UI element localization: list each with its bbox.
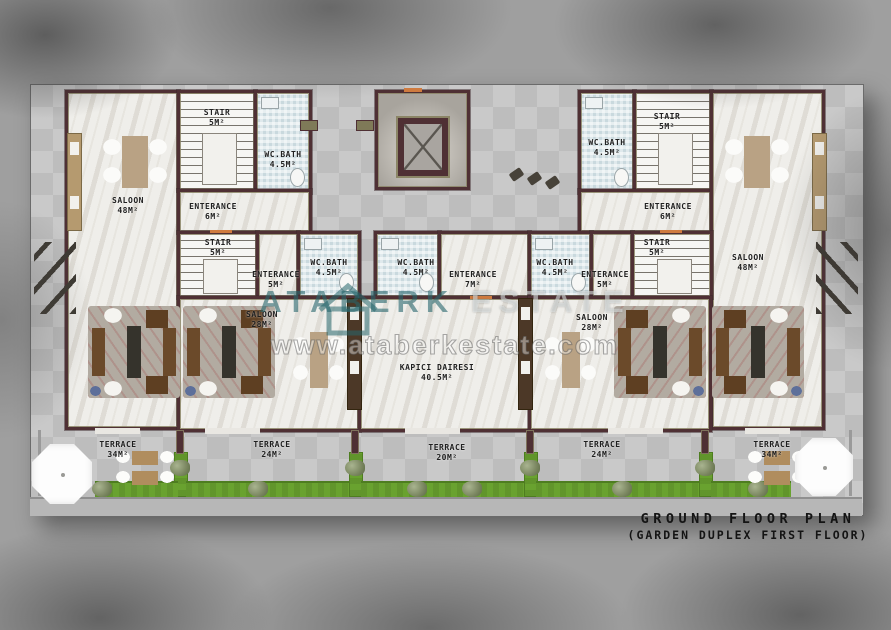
plan-title: GROUND FLOOR PLAN (GARDEN DUPLEX FIRST F… [606, 511, 890, 543]
room-label-saloon-tl: SALOON48M² [98, 196, 158, 215]
terrace-door-opening [405, 428, 460, 434]
bush-icon [520, 460, 540, 476]
dining-set [722, 131, 792, 193]
terrace-divider-wall [526, 430, 534, 454]
room-label-ent-tl: ENTERANCE6M² [183, 202, 243, 221]
kitchen-counter [812, 133, 827, 231]
terrace-door-opening [608, 428, 663, 434]
dining-set [293, 328, 345, 392]
sofa-set [614, 306, 706, 398]
terrace-divider-wall [701, 430, 709, 454]
room-label-wc-tl: WC.BATH4.5M² [253, 150, 313, 169]
door-marker [404, 88, 422, 92]
bush-icon [407, 481, 427, 497]
room-stair-top-right [633, 90, 713, 192]
room-wcbath-top-left [254, 90, 312, 194]
wall-stub [300, 120, 318, 131]
bush-icon [462, 481, 482, 497]
room-label-ent-c: ENTERANCE7M² [443, 270, 503, 289]
room-label-ent-mr: ENTERANCE5M² [575, 270, 635, 289]
elevator-shaft-icon [398, 118, 448, 176]
room-label-wc-ml: WC.BATH4.5M² [299, 258, 359, 277]
terrace-divider-wall [351, 430, 359, 454]
room-label-ent-ml: ENTERANCE5M² [246, 270, 306, 289]
room-label-terrace-4: TERRACE24M² [562, 440, 642, 459]
terrace-divider-wall [176, 430, 184, 454]
room-label-stair-mr: STAIR5M² [627, 238, 687, 257]
kitchen-counter [518, 298, 533, 410]
grass-strip [361, 481, 524, 497]
room-label-stair-tl: STAIR5M² [187, 108, 247, 127]
room-stair-top-left [177, 90, 257, 192]
sofa-set [712, 306, 804, 398]
bush-icon [695, 460, 715, 476]
floor-plan-canvas: SALOON48M² STAIR5M² WC.BATH4.5M² ENTERAN… [0, 0, 891, 630]
room-label-ent-tr: ENTERANCE6M² [638, 202, 698, 221]
kitchen-counter [67, 133, 82, 231]
room-label-stair-tr: STAIR5M² [637, 112, 697, 131]
dining-set [545, 328, 597, 392]
room-label-kapici: KAPICI DAIRESI40.5M² [377, 363, 497, 382]
sofa-set [88, 306, 180, 398]
door-marker [470, 296, 492, 299]
room-label-wc-tr: WC.BATH4.5M² [577, 138, 637, 157]
terrace-door-opening [205, 428, 260, 434]
room-label-saloon-ml: SALOON28M² [232, 310, 292, 329]
terrace-door-opening [745, 428, 790, 434]
dining-set [100, 131, 170, 193]
room-label-wc-c: WC.BATH4.5M² [386, 258, 446, 277]
pergola-louvers-icon [34, 242, 76, 314]
door-marker [660, 230, 682, 233]
room-label-stair-ml: STAIR5M² [188, 238, 248, 257]
pergola-louvers-icon [816, 242, 858, 314]
room-label-terrace-5: TERRACE34M² [732, 440, 812, 459]
bush-icon [248, 481, 268, 497]
room-label-terrace-1: TERRACE34M² [78, 440, 158, 459]
door-marker [210, 230, 232, 233]
terrace-door-opening [95, 428, 140, 434]
room-label-saloon-tr: SALOON48M² [718, 253, 778, 272]
room-label-terrace-2: TERRACE24M² [232, 440, 312, 459]
house-logo-icon [316, 280, 380, 336]
bush-icon [345, 460, 365, 476]
room-label-saloon-mr: SALOON28M² [562, 313, 622, 332]
bush-icon [92, 481, 112, 497]
room-label-terrace-3: TERRACE20M² [407, 443, 487, 462]
wall-stub [356, 120, 374, 131]
bush-icon [612, 481, 632, 497]
